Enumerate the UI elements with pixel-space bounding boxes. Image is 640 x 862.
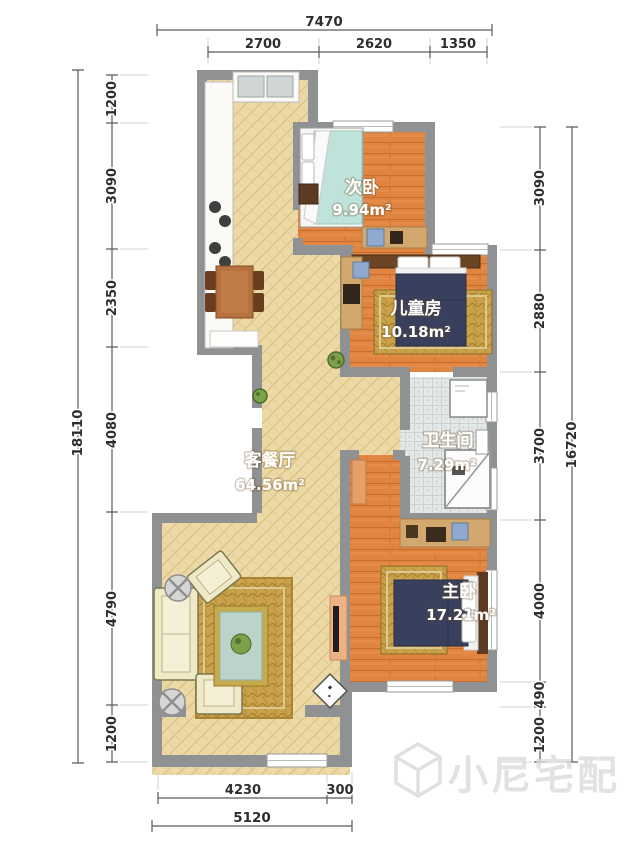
side-table [159,689,185,715]
cube-logo-icon [396,744,440,796]
window-master-bottom [387,681,453,692]
dim-right-seg3: 3700 [533,428,548,464]
dim-left-seg1: 1200 [105,81,120,117]
floor-plan-page: 次卧 9.94m² 儿童房 10.18m² 卫生间 7.29m² 客餐厅 64.… [0,0,640,862]
dim-left-overall: 18110 [70,410,86,457]
sink-basin-left [238,76,264,97]
dim-left-seg3: 2350 [105,280,120,316]
window-balcony-bottom [267,754,327,767]
dining-table-top [221,271,248,313]
table-plant [231,634,251,654]
door-leaf [352,460,366,504]
room-area-bathroom: 7.29m² [417,456,476,474]
desk-item [343,284,360,304]
room-area-master-bedroom: 17.21m² [426,606,496,624]
room-label-living-dining: 客餐厅 [244,450,296,471]
room-area-secondary-bedroom: 9.94m² [332,201,391,219]
plant [253,389,267,403]
room-area-kids-room: 10.18m² [381,323,451,341]
room-label-master-bedroom: 主卧 [442,581,476,602]
dim-right-seg1: 3090 [533,170,548,206]
dining-chair [205,271,216,290]
dresser-item-blue [452,523,468,540]
dresser-chair [426,527,446,542]
dim-left-seg5: 4790 [105,591,120,627]
dim-left-seg6: 1200 [105,716,120,752]
dim-left-seg2: 3090 [105,168,120,204]
room-label-kids-room: 儿童房 [390,298,442,319]
dim-right-seg2: 2880 [533,293,548,329]
dresser-item [406,525,418,538]
plant [328,352,344,368]
dim-right-seg5: 490 [533,681,548,708]
dining-chair [253,271,264,290]
outside-top-right [318,62,352,122]
room-area-living-dining: 64.56m² [235,476,305,494]
dim-top-seg1: 2700 [245,37,281,52]
dim-top-seg3: 1350 [440,37,476,52]
dim-top-overall: 7470 [305,14,343,30]
dim-left-seg4: 4080 [105,412,120,448]
dining-chair [205,293,216,312]
sink-basin-right [267,76,293,97]
dim-right-seg6: 1200 [533,717,548,753]
desk-chair [367,229,384,246]
window-kids-room-top [432,244,488,255]
desk-item [390,231,403,244]
coffee-table [214,606,268,686]
dim-bottom-seg2: 300 [326,783,353,798]
dim-right-overall: 16720 [564,422,580,469]
desk-chair [353,262,369,278]
pillow [302,134,314,160]
dim-top-seg2: 2620 [356,37,392,52]
watermark-text: 小尼宅配 [448,753,620,799]
nightstand [299,184,318,204]
tv-console [330,596,347,660]
sofa [154,588,198,680]
dining-chair [253,293,264,312]
bathroom-door-leaf [476,430,488,454]
dim-right-seg4: 4000 [533,583,548,619]
tv-screen [333,606,339,652]
hallway-floor [350,377,400,460]
room-label-bathroom: 卫生间 [423,430,474,451]
kitchen-cabinet [210,331,258,347]
floor-plan-canvas: 次卧 9.94m² 儿童房 10.18m² 卫生间 7.29m² 客餐厅 64.… [0,0,640,862]
side-table [165,575,191,601]
dim-bottom-seg1: 4230 [225,783,261,798]
dim-bottom-overall: 5120 [233,810,271,826]
watermark: 小尼宅配 [396,744,620,799]
room-label-secondary-bedroom: 次卧 [345,177,379,198]
